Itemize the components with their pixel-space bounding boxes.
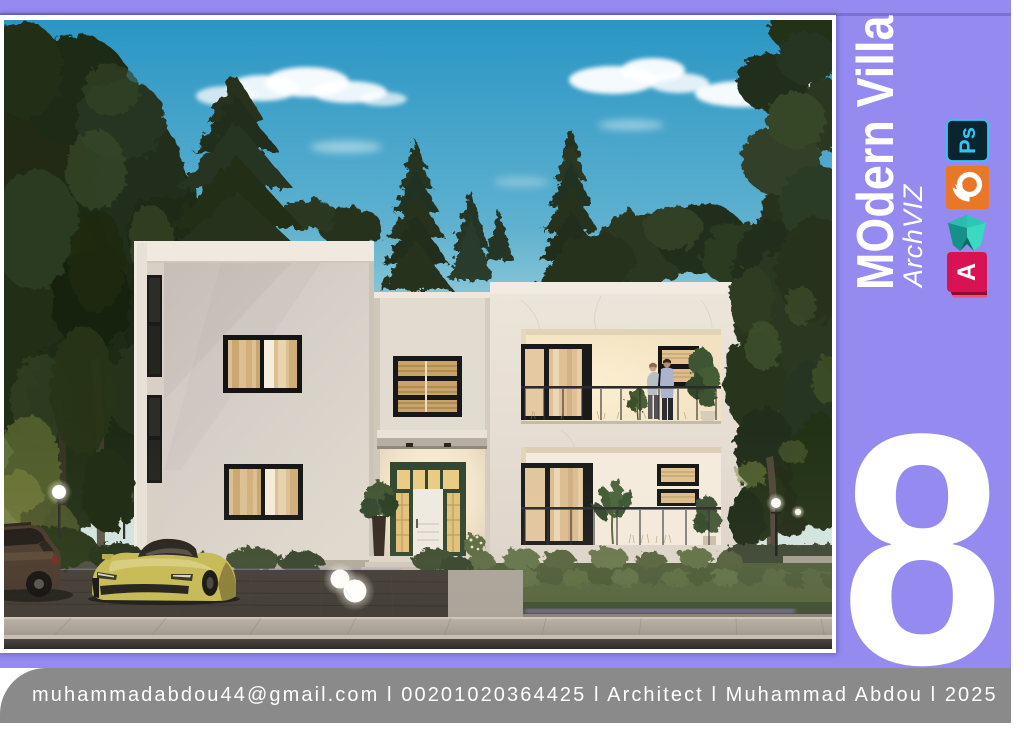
svg-text:Ps: Ps — [955, 127, 980, 154]
svg-text:A: A — [953, 263, 981, 281]
